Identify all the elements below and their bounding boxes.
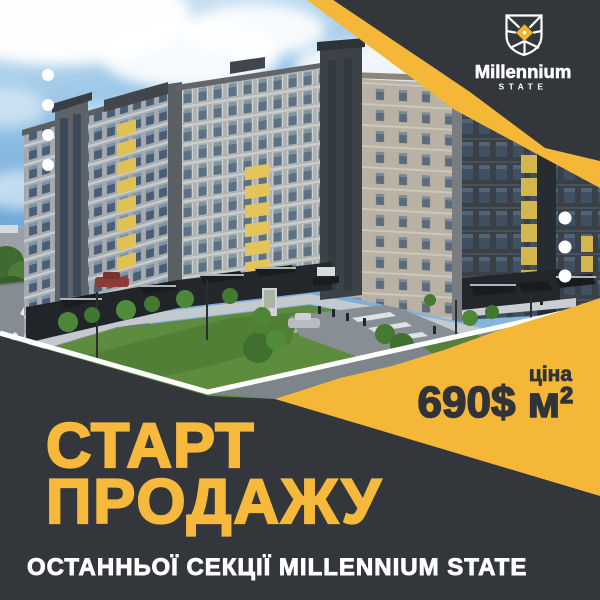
svg-text:ОСТАННЬОЇ СЕКЦІЇ MILLENNIUM ST: ОСТАННЬОЇ СЕКЦІЇ MILLENNIUM STATE <box>27 554 527 581</box>
svg-text:STATE: STATE <box>498 82 547 92</box>
svg-text:690$ м2: 690$ м2 <box>418 378 573 427</box>
svg-text:Millennium: Millennium <box>475 61 572 82</box>
svg-text:ПРОДАЖУ: ПРОДАЖУ <box>46 467 383 537</box>
